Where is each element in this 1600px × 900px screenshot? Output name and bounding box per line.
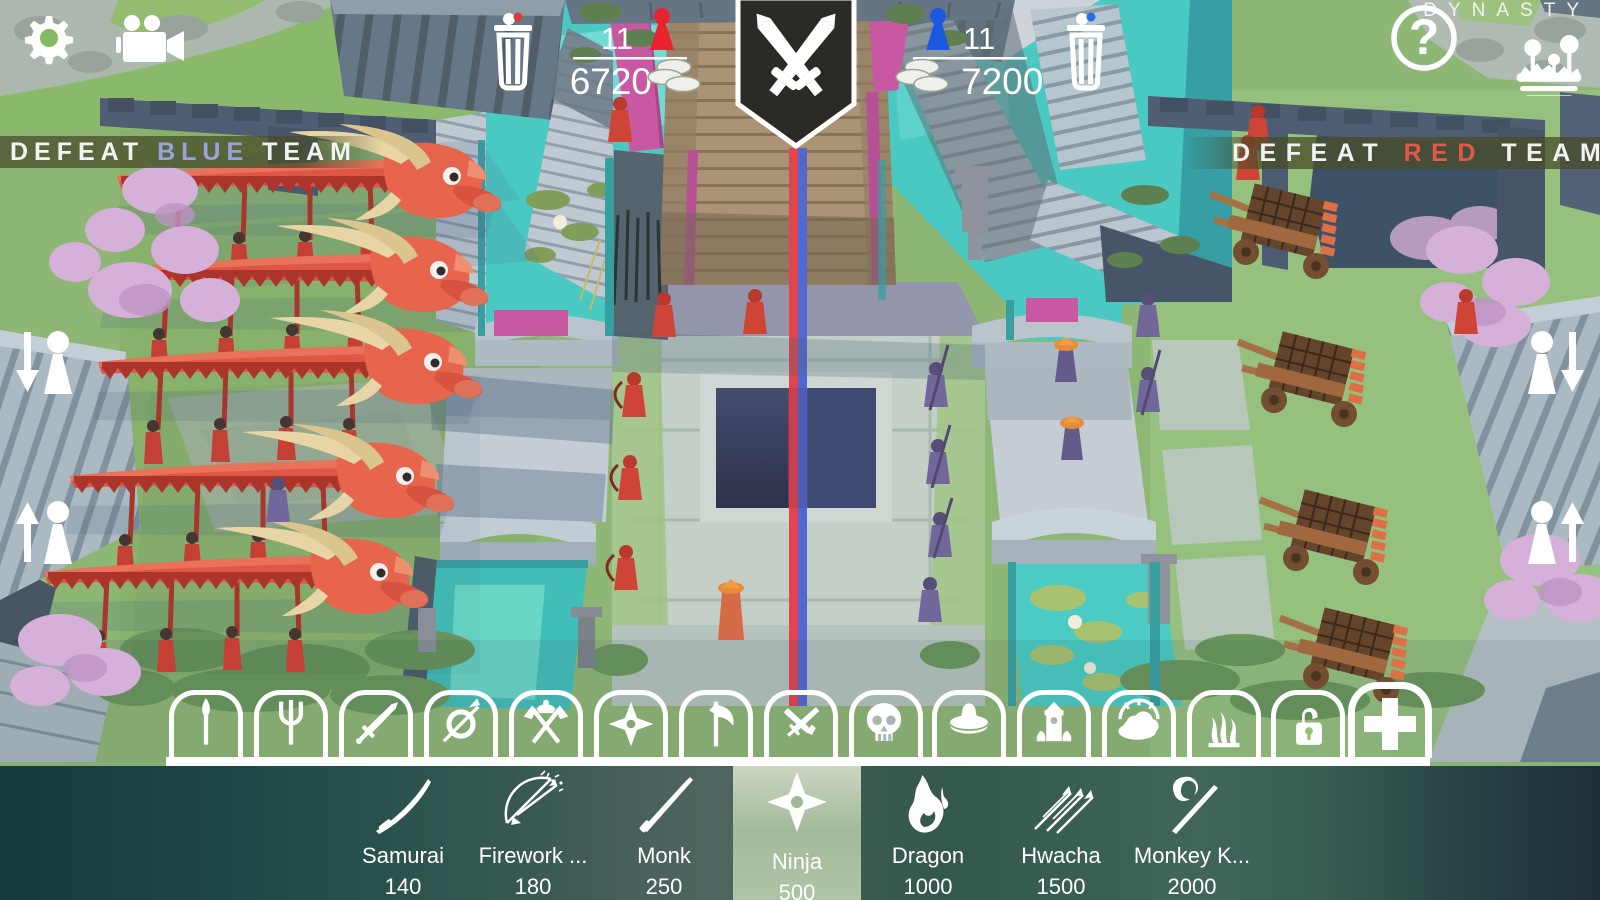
svg-text:?: ? [1409,9,1440,65]
svg-text:7200: 7200 [961,61,1043,100]
svg-text:6720: 6720 [570,61,652,100]
svg-text:11: 11 [601,21,633,56]
svg-text:11: 11 [963,21,995,56]
